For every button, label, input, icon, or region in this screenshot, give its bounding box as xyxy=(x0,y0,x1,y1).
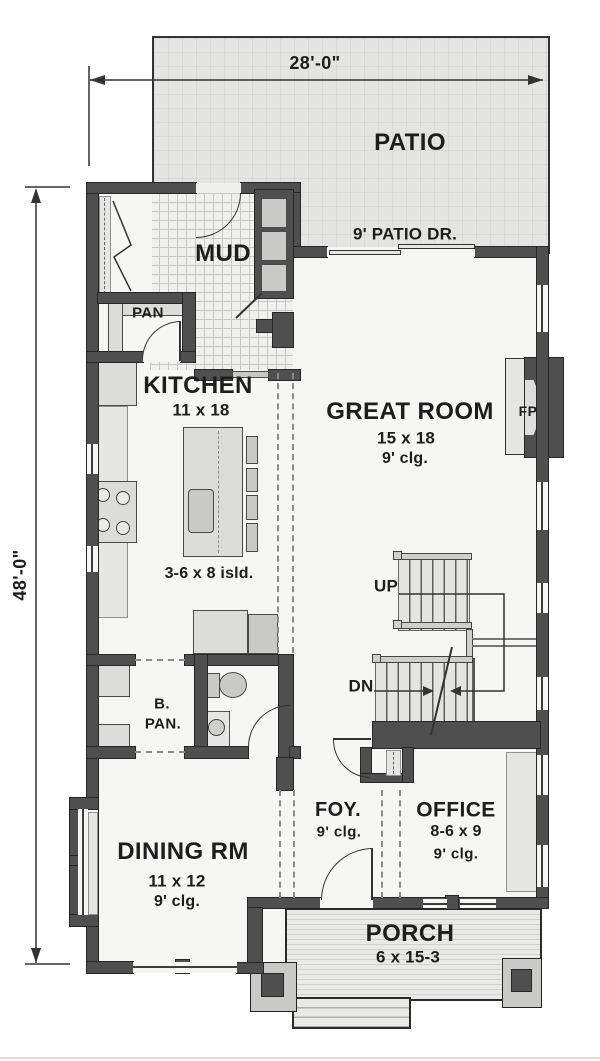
stool xyxy=(246,436,258,464)
greatroom-window xyxy=(537,285,548,332)
bay-window xyxy=(78,809,88,915)
foyer-label: FOY. xyxy=(315,800,361,820)
stool xyxy=(246,468,258,492)
kitchen-bench xyxy=(193,610,248,654)
burner xyxy=(116,491,130,505)
mud-cubby xyxy=(261,231,287,261)
island-seam xyxy=(218,431,219,553)
ceiling-break xyxy=(277,373,279,653)
porch-column-left-post xyxy=(262,974,283,996)
toilet-bowl xyxy=(219,672,247,698)
wall-foyer-closet xyxy=(403,748,413,782)
stool xyxy=(246,523,258,552)
greatroom-window xyxy=(537,482,548,530)
pantry-label: PAN xyxy=(132,306,164,321)
stool xyxy=(246,495,258,520)
wall-greatroom-north xyxy=(290,247,327,257)
wall-front-stub xyxy=(446,896,458,909)
stair-rail xyxy=(375,656,473,663)
wall-dining-east xyxy=(277,758,293,790)
kitchen-size: 11 x 18 xyxy=(172,402,229,419)
ceiling-break xyxy=(292,373,294,653)
butlers-pantry-label-2: PAN. xyxy=(145,717,181,732)
wall-south-hall xyxy=(290,747,300,758)
bay-wall xyxy=(70,915,98,926)
foyer-closet-door-leaf xyxy=(333,738,371,740)
dining-ceiling: 9' clg. xyxy=(154,894,200,910)
wall-pantry-south xyxy=(181,352,195,362)
foyer-ceiling: 9' clg. xyxy=(317,825,362,840)
kitchen-window xyxy=(87,546,98,572)
foyer-office-opening xyxy=(381,790,383,898)
office-size: 8-6 x 9 xyxy=(430,824,481,840)
kitchen-label: KITCHEN xyxy=(143,374,252,398)
patio-door-label: 9' PATIO DR. xyxy=(353,226,457,243)
stairhall-window xyxy=(537,583,548,613)
patio-door-panel xyxy=(329,250,401,255)
office-window-south xyxy=(423,899,447,908)
stairs-up-label: UP xyxy=(374,578,398,595)
landing-edge xyxy=(472,645,537,647)
refrigerator xyxy=(98,362,137,406)
burner xyxy=(96,518,110,532)
mud-cubby xyxy=(261,198,287,228)
porch-size: 6 x 15-3 xyxy=(376,949,440,966)
landing-edge xyxy=(472,638,537,640)
great-room-label: GREAT ROOM xyxy=(326,400,494,424)
stair-rail-post xyxy=(372,654,381,663)
wall-bpantry-north xyxy=(87,655,135,665)
width-dimension: 28'-0" xyxy=(289,54,340,72)
kitchen-bench-side xyxy=(248,614,278,654)
toilet-tank xyxy=(205,673,220,698)
wall-mud-top xyxy=(87,183,196,193)
office-window-south xyxy=(460,899,496,908)
bay-sill xyxy=(88,812,98,915)
wall-pantry-south xyxy=(87,352,143,362)
patio-label: PATIO xyxy=(374,131,446,155)
bpantry-opening xyxy=(135,751,185,753)
island-sink xyxy=(188,489,214,533)
foyer-office-opening xyxy=(399,790,401,898)
stair-rail-post xyxy=(393,620,402,629)
wall-dining-south xyxy=(237,963,263,973)
wall-jog xyxy=(248,908,262,965)
great-room-ceiling: 9' clg. xyxy=(382,451,428,467)
dining-size: 11 x 12 xyxy=(148,873,205,890)
pantry-door-leaf xyxy=(179,321,181,361)
ceiling-break xyxy=(293,790,295,898)
wall-right xyxy=(537,247,548,908)
island-label: 3-6 x 8 isld. xyxy=(165,566,254,582)
ceiling-break xyxy=(279,790,281,898)
wall-front xyxy=(248,898,320,908)
wall-bpantry-powder xyxy=(195,655,207,755)
wall-mud-south xyxy=(269,370,300,380)
office-window-east xyxy=(537,755,548,795)
butlers-counter-top xyxy=(98,663,130,697)
office-window-east xyxy=(537,845,548,887)
great-room-size: 15 x 18 xyxy=(377,430,435,447)
height-dimension: 48'-0" xyxy=(11,549,29,600)
closet-rod-line xyxy=(104,198,105,294)
patio-door-panel xyxy=(398,244,475,249)
front-door-leaf xyxy=(371,848,373,900)
stair-edge xyxy=(473,658,475,722)
closet-slider-line xyxy=(393,752,394,774)
burner xyxy=(116,521,130,535)
wall-lockers xyxy=(255,190,293,298)
stairs-down-label: DN xyxy=(349,678,374,695)
porch-steps xyxy=(292,997,411,1029)
closet-shelf xyxy=(99,196,111,296)
mud-cubby xyxy=(261,264,287,292)
office-ceiling: 9' clg. xyxy=(434,847,479,862)
office-label: OFFICE xyxy=(416,800,495,821)
wall-south-hall xyxy=(185,747,248,758)
dining-label: DINING RM xyxy=(117,840,249,864)
bpantry-opening xyxy=(135,659,185,661)
burner xyxy=(96,488,110,502)
wall-mud-se xyxy=(273,313,293,347)
stair-landing-rail xyxy=(466,629,473,659)
stair-lower-flight xyxy=(375,658,473,722)
stair-rail xyxy=(395,622,472,629)
fireplace-label: FP xyxy=(519,404,538,418)
mud-entry-opening xyxy=(196,183,241,193)
butlers-pantry-label-1: B. xyxy=(154,697,170,712)
bay-wall xyxy=(70,798,98,809)
porch-column-right-post xyxy=(512,970,531,991)
wall-dining-south xyxy=(87,962,133,973)
kitchen-window xyxy=(87,444,98,474)
wall-understair xyxy=(373,722,540,748)
office-window-seat xyxy=(506,752,537,892)
dining-window-south xyxy=(133,962,237,973)
mud-label: MUD xyxy=(195,242,251,266)
stair-upper-flight xyxy=(398,555,470,631)
wall-closet-pantry xyxy=(98,293,186,303)
floor-plan: PATIO 28'-0" 48'-0" 9' PATIO DR. MUD PAN… xyxy=(0,0,600,1061)
stair-rail xyxy=(395,553,472,560)
stair-rail-post xyxy=(393,551,402,560)
powder-sink-basin xyxy=(208,719,225,736)
stairhall-window xyxy=(537,677,548,710)
wall-south-hall xyxy=(87,747,135,758)
porch-label: PORCH xyxy=(366,922,455,946)
pantry-counter-side xyxy=(108,303,123,352)
